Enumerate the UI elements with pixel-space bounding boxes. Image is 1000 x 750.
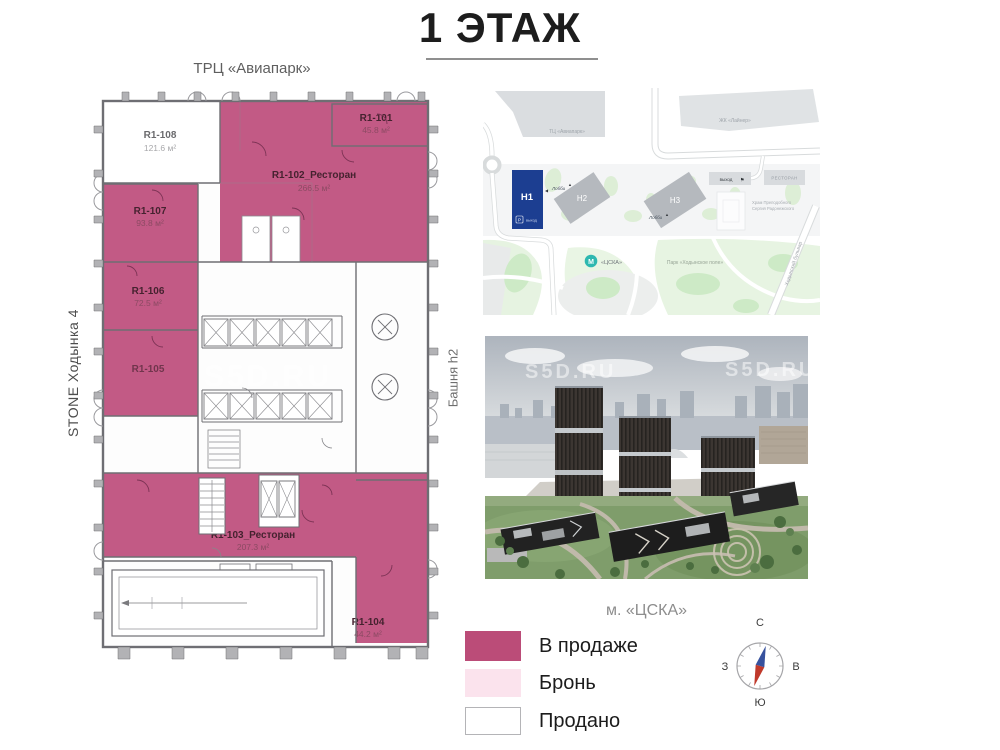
plan-label-tower-h2: Башня h2: [446, 349, 461, 407]
parking-icon-letter: Р: [518, 218, 521, 223]
map-label-park: Парк «Ходынское поле»: [667, 260, 724, 266]
unit-id: R1-105: [132, 364, 165, 375]
arrow-up-icon: ▲: [568, 182, 572, 187]
map-label-h1-exit: выход: [526, 219, 538, 223]
elevator-bank-top: [204, 319, 332, 346]
map-restaurant-box: РЕСТОРАН: [764, 170, 805, 185]
unit-r1-108[interactable]: R1-108 121.6 м²: [103, 101, 220, 183]
legend-swatch-reserved: [465, 669, 521, 697]
legend-label-for-sale: В продаже: [539, 635, 638, 658]
arrow-up-icon-2: ▲: [665, 212, 669, 217]
map-exit-box: выход ⚑: [709, 172, 751, 185]
legend-label-reserved: Бронь: [539, 672, 596, 695]
map-label-metro: «ЦСКА»: [601, 260, 622, 266]
elevator-bank-bottom: [204, 393, 332, 419]
compass: С Ю З В: [716, 612, 804, 708]
compass-south: Ю: [754, 697, 765, 708]
unit-id: R1-101: [360, 113, 393, 124]
map-label-liner: ЖК «Лайнер»: [719, 117, 751, 124]
legend-label-sold: Продано: [539, 710, 620, 733]
ramp-strip: [112, 570, 324, 636]
photo-watermark-left: S5D.RU: [525, 361, 616, 383]
photo-watermark-right: S5D.RU: [725, 359, 808, 381]
map-label-h1: Н1: [521, 192, 534, 203]
page-title: 1 ЭТАЖ: [0, 4, 1000, 52]
unit-id: R1-102_Ресторан: [272, 170, 356, 181]
unit-area: 121.6 м²: [144, 143, 176, 153]
compass-west: З: [722, 661, 729, 673]
map-label-exit: выход: [720, 177, 733, 182]
map-label-lobby2: Лобби: [648, 215, 663, 220]
unit-area: 207.3 м²: [237, 542, 269, 552]
map-label-h2: Н2: [577, 194, 588, 203]
floor-plan: R1-108 121.6 м² R1-102_Ресторан 266.5 м²…: [92, 90, 440, 662]
unit-area: 72.5 м²: [134, 298, 162, 308]
unit-id: R1-106: [132, 286, 165, 297]
map-label-restaurant: РЕСТОРАН: [771, 176, 797, 181]
unit-area: 45.8 м²: [362, 125, 390, 135]
unit-id: R1-107: [134, 206, 167, 217]
unit-area: 266.5 м²: [298, 183, 330, 193]
map-label-h3: Н3: [670, 196, 681, 205]
compass-east: В: [792, 661, 799, 673]
unit-r1-105[interactable]: R1-105: [103, 330, 198, 416]
legend-swatch-for-sale: [465, 631, 521, 661]
compass-north: С: [756, 617, 764, 629]
unit-r1-107[interactable]: R1-107 93.8 м²: [103, 184, 198, 262]
title-underline: [426, 58, 598, 60]
unit-r1-101[interactable]: R1-101 45.8 м²: [332, 104, 428, 146]
unit-r1-106[interactable]: R1-106 72.5 м²: [103, 262, 198, 330]
unit-id: R1-108: [144, 130, 177, 141]
plan-label-aviapark: ТРЦ «Авиапарк»: [92, 60, 412, 77]
plan-watermark: S5D.RU: [204, 360, 332, 393]
unit-area: 44.2 м²: [354, 629, 382, 639]
aerial-photo: S5D.RU S5D.RU: [485, 336, 808, 579]
map-building-h1[interactable]: Н1 Р выход: [512, 170, 543, 229]
map-label-aviapark: ТЦ «Авиапарк»: [549, 129, 585, 135]
unit-area: 93.8 м²: [136, 218, 164, 228]
page: 1 ЭТАЖ ТРЦ «Авиапарк» STONE Ходынка 4 Ба…: [0, 0, 1000, 750]
legend-item-sold: Продано: [465, 707, 620, 735]
plan-label-stone-khodynka: STONE Ходынка 4: [65, 309, 81, 437]
site-map: ТЦ «Авиапарк» ЖК «Лайнер» Н1 Р выход Н2 …: [483, 88, 820, 315]
legend-item-reserved: Бронь: [465, 669, 596, 697]
map-label-church-2: Сергия Радонежского: [752, 206, 795, 211]
legend-swatch-sold: [465, 707, 521, 735]
metro-icon-letter: М: [588, 259, 594, 266]
map-label-church-1: Храм Преподобного: [752, 200, 792, 205]
map-label-lobby1: Лобби: [551, 186, 566, 191]
legend-item-for-sale: В продаже: [465, 631, 638, 661]
flag-icon: ⚑: [740, 178, 744, 184]
